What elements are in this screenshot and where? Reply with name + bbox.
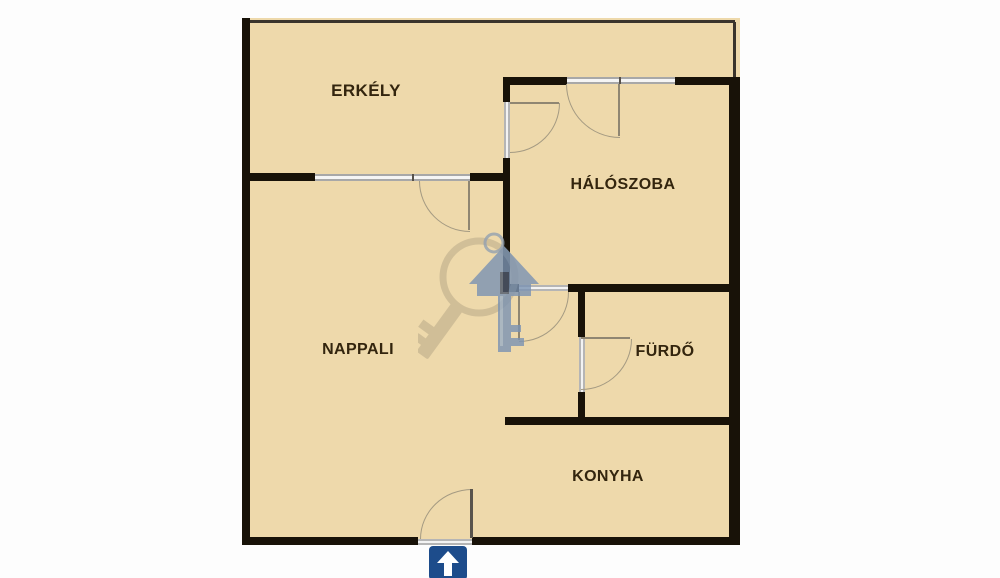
bathroom-door-leaf (581, 337, 630, 339)
bedroom-side-door-leaf (510, 102, 559, 104)
outer-wall-left (242, 18, 250, 545)
entrance-door-threshold (418, 539, 472, 545)
bedroom-balcony-door-leaf (618, 84, 620, 136)
balcony-railing-top (245, 20, 735, 23)
floorplan-canvas: ERKÉLY HÁLÓSZOBA NAPPALI FÜRDŐ KONYHA (0, 0, 1000, 578)
living-window-divider (412, 174, 414, 181)
room-label-konyha: KONYHA (572, 468, 644, 486)
entrance-marker (429, 546, 467, 578)
kitchen-dividing-wall (505, 417, 740, 425)
room-label-erkely: ERKÉLY (331, 81, 401, 101)
bedroom-bottom-wall-right (568, 284, 740, 292)
room-label-nappali: NAPPALI (322, 341, 394, 359)
bedroom-top-wall-right (675, 77, 733, 85)
bedroom-left-wall-upper (503, 84, 510, 102)
bathroom-left-wall-upper (578, 292, 585, 337)
outer-wall-bottom-right (472, 537, 740, 545)
balcony-railing-right (733, 22, 736, 79)
entrance-door-leaf (470, 489, 473, 538)
outer-wall-right (729, 77, 740, 545)
bedroom-top-wall-left (503, 77, 567, 85)
room-label-furdo: FÜRDŐ (636, 343, 695, 361)
balcony-bottom-wall-right (470, 173, 510, 181)
keys-watermark-icon (418, 218, 562, 372)
bedroom-balcony-window (567, 77, 675, 84)
bedroom-window-divider (619, 77, 621, 84)
living-room-balcony-window (315, 174, 470, 181)
balcony-bottom-wall-left (242, 173, 315, 181)
up-arrow-icon (429, 546, 467, 578)
outer-wall-bottom-left (242, 537, 418, 545)
room-label-haloszoba: HÁLÓSZOBA (571, 176, 676, 194)
